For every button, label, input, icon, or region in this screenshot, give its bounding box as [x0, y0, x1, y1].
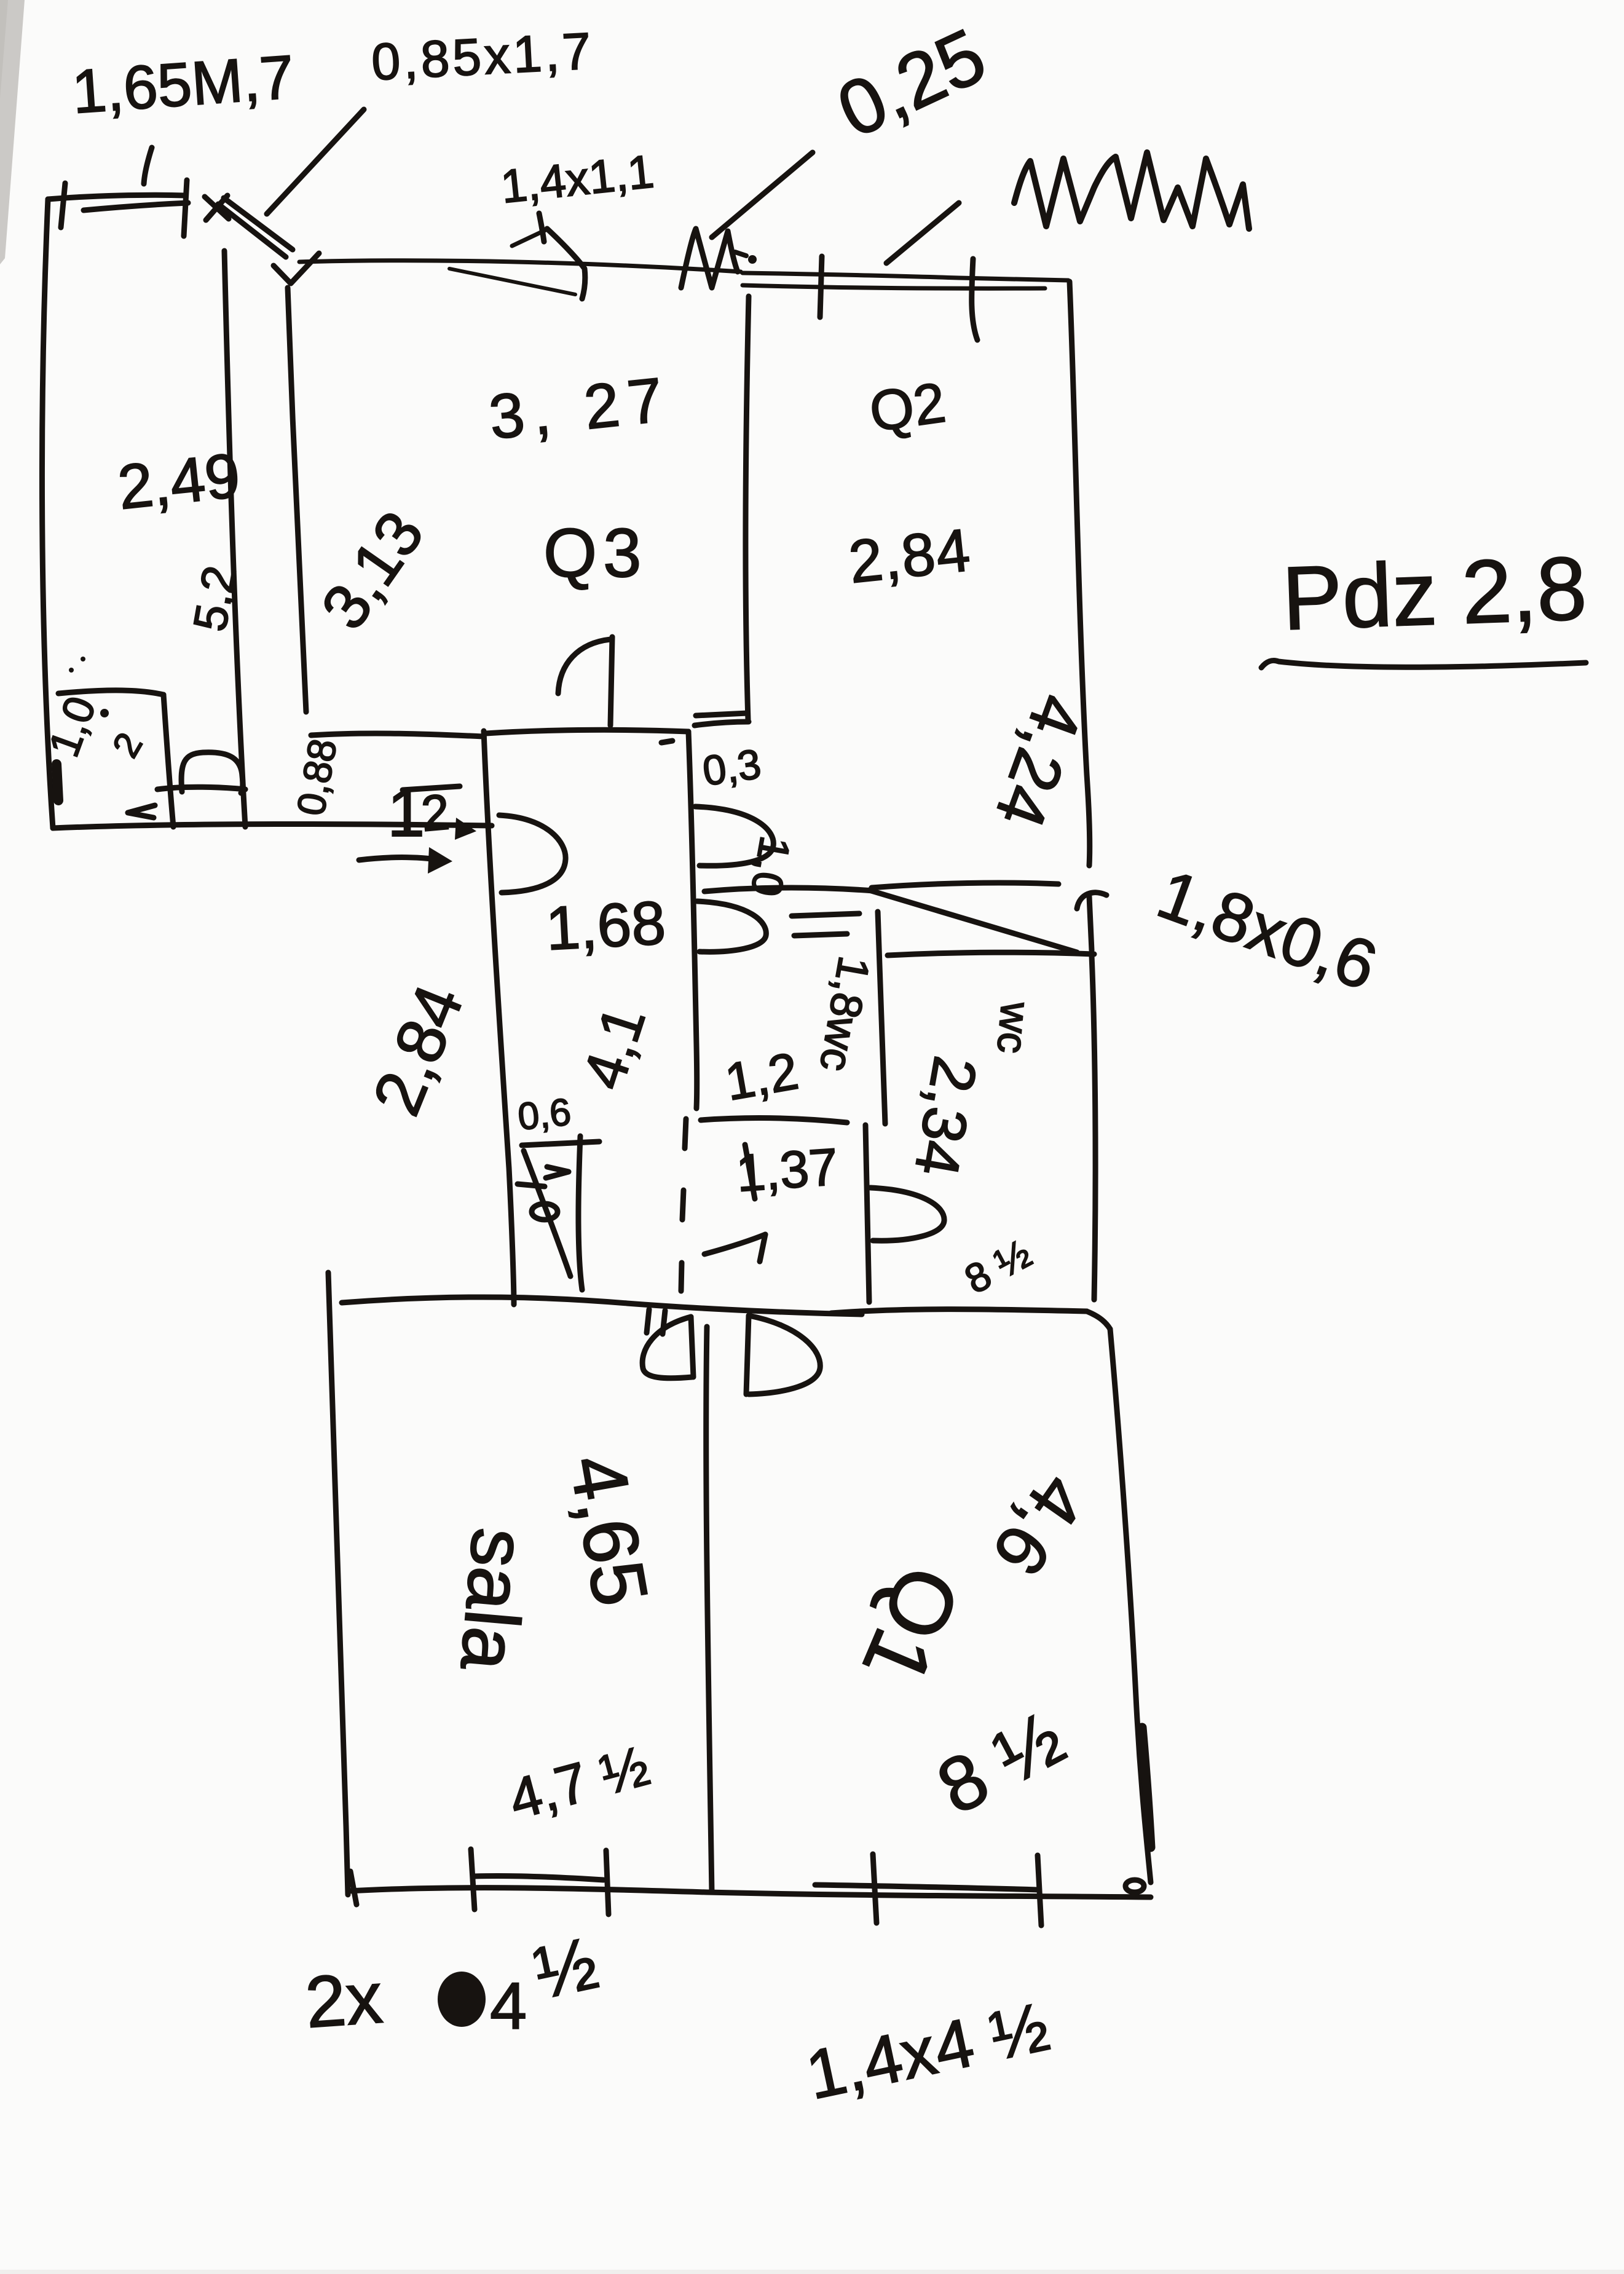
svg-text:1,2: 1,2 [721, 1042, 803, 1112]
svg-text:5,2: 5,2 [184, 562, 246, 635]
svg-text:Q2: Q2 [866, 371, 950, 444]
svg-text:Pdz 2,8: Pdz 2,8 [1280, 538, 1588, 649]
svg-text:1,0: 1,0 [742, 832, 800, 899]
svg-text:2x: 2x [303, 1957, 385, 2043]
svg-text:2,49: 2,49 [114, 440, 243, 523]
svg-text:0,6: 0,6 [516, 1091, 573, 1139]
svg-text:0,3: 0,3 [700, 740, 764, 794]
svg-text:1,37: 1,37 [735, 1138, 840, 1203]
svg-text:sala: sala [444, 1525, 543, 1675]
svg-text:2: 2 [419, 784, 452, 842]
svg-text:1,68: 1,68 [544, 888, 667, 963]
svg-text:2,84: 2,84 [846, 516, 974, 596]
svg-text:Q3: Q3 [543, 515, 647, 591]
svg-text:4: 4 [490, 1968, 527, 2043]
svg-text:wc: wc [988, 1000, 1039, 1055]
svg-text:0,85x1,7: 0,85x1,7 [370, 22, 596, 91]
